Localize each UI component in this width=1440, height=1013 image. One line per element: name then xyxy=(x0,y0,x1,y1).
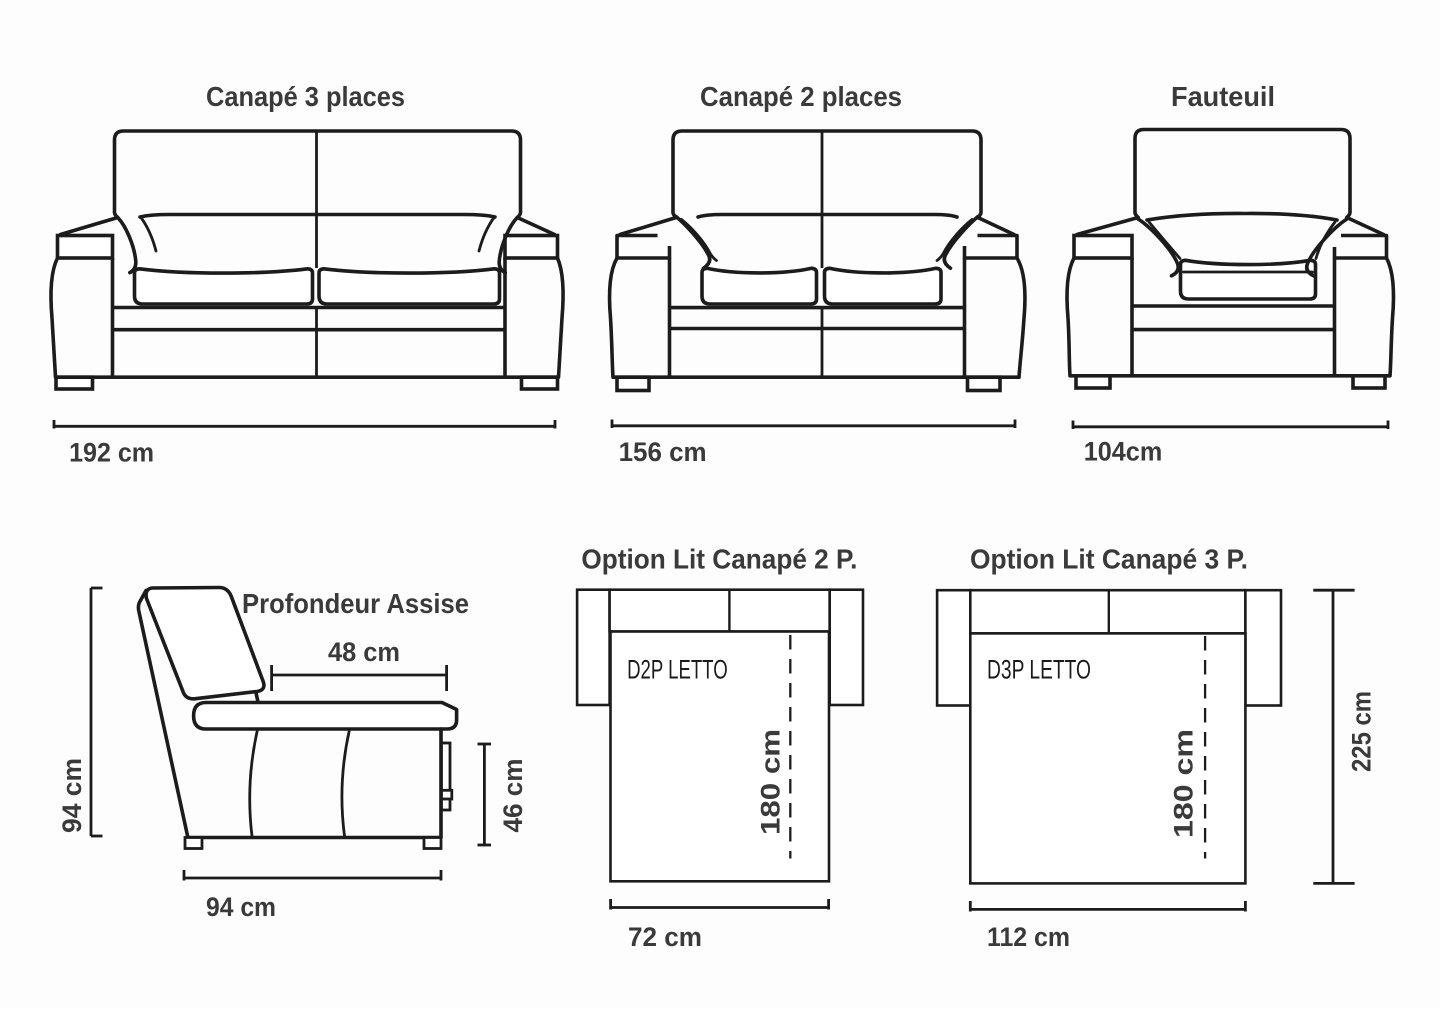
svg-text:112 cm: 112 cm xyxy=(987,922,1070,952)
svg-text:Canapé 2 places: Canapé 2 places xyxy=(700,81,902,112)
svg-text:94 cm: 94 cm xyxy=(57,758,87,833)
svg-text:156 cm: 156 cm xyxy=(619,437,707,467)
svg-text:192 cm: 192 cm xyxy=(69,437,154,467)
svg-text:Fauteuil: Fauteuil xyxy=(1171,81,1275,112)
svg-text:225 cm: 225 cm xyxy=(1347,691,1377,772)
svg-text:Profondeur Assise: Profondeur Assise xyxy=(242,588,469,619)
svg-text:Option Lit Canapé 3 P.: Option Lit Canapé 3 P. xyxy=(970,543,1248,574)
svg-text:46 cm: 46 cm xyxy=(498,759,528,833)
svg-text:Option Lit Canapé 2 P.: Option Lit Canapé 2 P. xyxy=(581,543,857,574)
svg-text:48 cm: 48 cm xyxy=(328,637,400,667)
svg-text:180 cm: 180 cm xyxy=(756,729,786,835)
svg-text:104cm: 104cm xyxy=(1084,437,1163,467)
svg-text:D3P LETTO: D3P LETTO xyxy=(987,655,1091,685)
svg-text:Canapé 3 places: Canapé 3 places xyxy=(206,81,405,112)
svg-text:D2P LETTO: D2P LETTO xyxy=(627,655,728,685)
svg-text:180 cm: 180 cm xyxy=(1169,729,1199,838)
svg-text:72 cm: 72 cm xyxy=(628,922,702,952)
svg-text:94 cm: 94 cm xyxy=(206,892,276,922)
